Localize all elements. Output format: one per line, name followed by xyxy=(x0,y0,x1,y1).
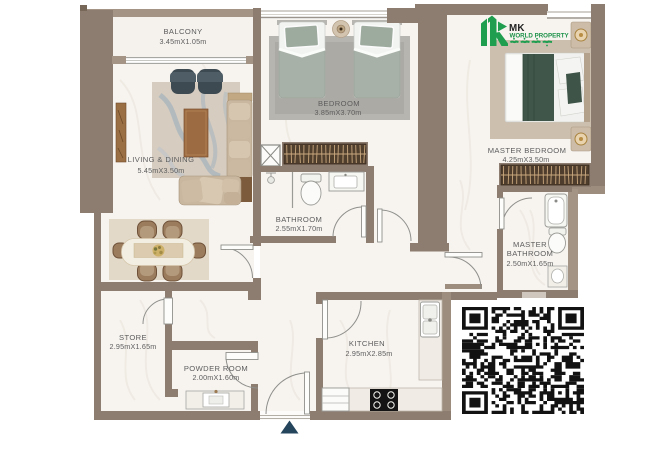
svg-text:POWDER ROOM: POWDER ROOM xyxy=(184,364,248,373)
svg-text:WORLD PROPERTY: WORLD PROPERTY xyxy=(510,32,570,39)
svg-text:3.85mX3.70m: 3.85mX3.70m xyxy=(315,108,362,117)
svg-text:BATHROOM: BATHROOM xyxy=(507,249,554,258)
svg-text:2.50mX1.65m: 2.50mX1.65m xyxy=(507,259,554,268)
svg-text:3.45mX1.05m: 3.45mX1.05m xyxy=(160,37,207,46)
svg-text:MASTER BEDROOM: MASTER BEDROOM xyxy=(488,146,567,155)
svg-text:BEDROOM: BEDROOM xyxy=(318,99,360,108)
svg-text:2.95mX2.85m: 2.95mX2.85m xyxy=(346,349,393,358)
svg-text:2.55mX1.70m: 2.55mX1.70m xyxy=(276,224,323,233)
svg-text:BALCONY: BALCONY xyxy=(163,27,202,36)
svg-text:BATHROOM: BATHROOM xyxy=(276,215,323,224)
svg-text:KITCHEN: KITCHEN xyxy=(349,339,385,348)
svg-text:STORE: STORE xyxy=(119,333,147,342)
svg-text:5.45mX3.50m: 5.45mX3.50m xyxy=(138,166,185,175)
svg-text:2.95mX1.65m: 2.95mX1.65m xyxy=(110,342,157,351)
svg-text:LIVING & DINING: LIVING & DINING xyxy=(128,155,195,164)
svg-text:MASTER: MASTER xyxy=(513,240,547,249)
svg-text:4.25mX3.50m: 4.25mX3.50m xyxy=(503,155,550,164)
svg-text:2.00mX1.60m: 2.00mX1.60m xyxy=(193,373,240,382)
